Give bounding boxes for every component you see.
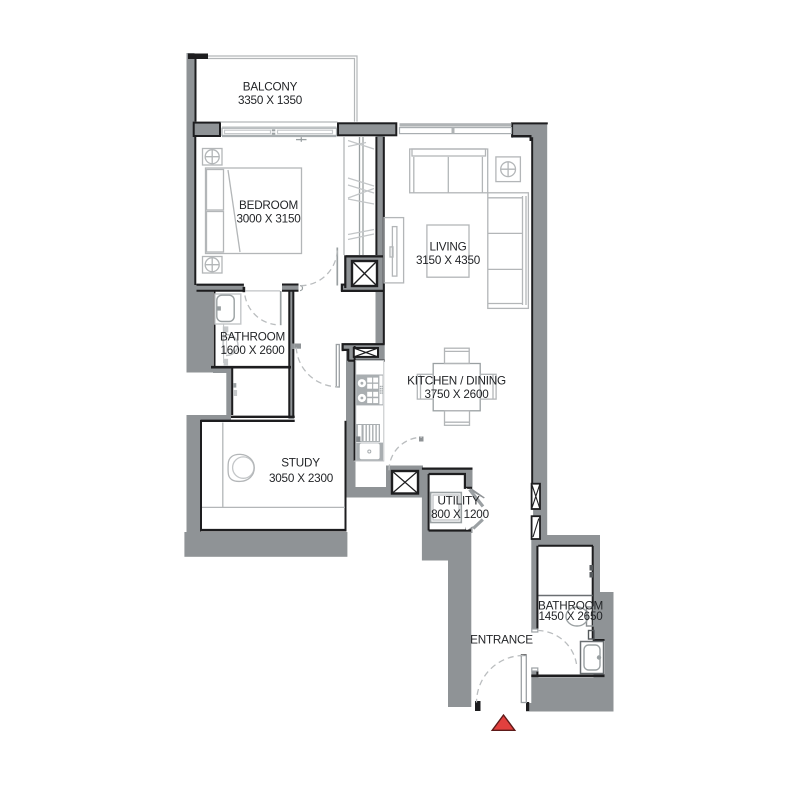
svg-text:800 X 1200: 800 X 1200	[431, 508, 489, 521]
svg-text:3750 X 2600: 3750 X 2600	[424, 388, 489, 401]
svg-text:ENTRANCE: ENTRANCE	[470, 634, 533, 647]
svg-text:BALCONY: BALCONY	[243, 81, 298, 94]
svg-text:BEDROOM: BEDROOM	[239, 199, 298, 212]
svg-text:3150 X 4350: 3150 X 4350	[416, 254, 481, 267]
svg-text:UTILITY: UTILITY	[437, 495, 480, 508]
svg-text:BATHROOM: BATHROOM	[220, 331, 285, 344]
svg-text:3000 X 3150: 3000 X 3150	[236, 213, 301, 226]
svg-text:LIVING: LIVING	[429, 241, 466, 254]
svg-text:KITCHEN / DINING: KITCHEN / DINING	[407, 375, 506, 388]
svg-text:STUDY: STUDY	[281, 457, 320, 470]
svg-text:1600 X 2600: 1600 X 2600	[220, 344, 285, 357]
svg-text:3050 X 2300: 3050 X 2300	[269, 472, 334, 485]
svg-text:1450 X 2650: 1450 X 2650	[538, 610, 603, 623]
svg-text:3350 X 1350: 3350 X 1350	[238, 94, 303, 107]
